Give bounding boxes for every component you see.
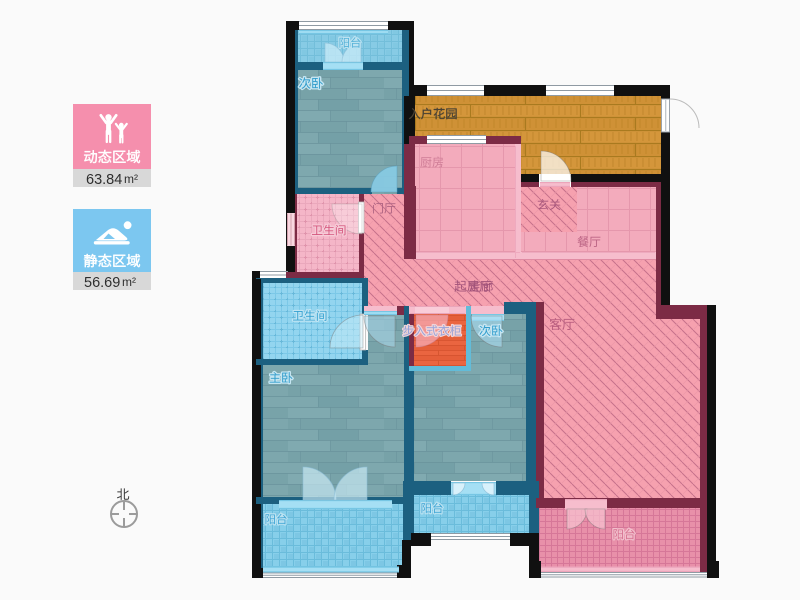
svg-text:56.69: 56.69 <box>84 275 120 291</box>
svg-text:m²: m² <box>124 172 138 186</box>
svg-text:63.84: 63.84 <box>86 172 122 188</box>
svg-text:m²: m² <box>122 275 136 289</box>
